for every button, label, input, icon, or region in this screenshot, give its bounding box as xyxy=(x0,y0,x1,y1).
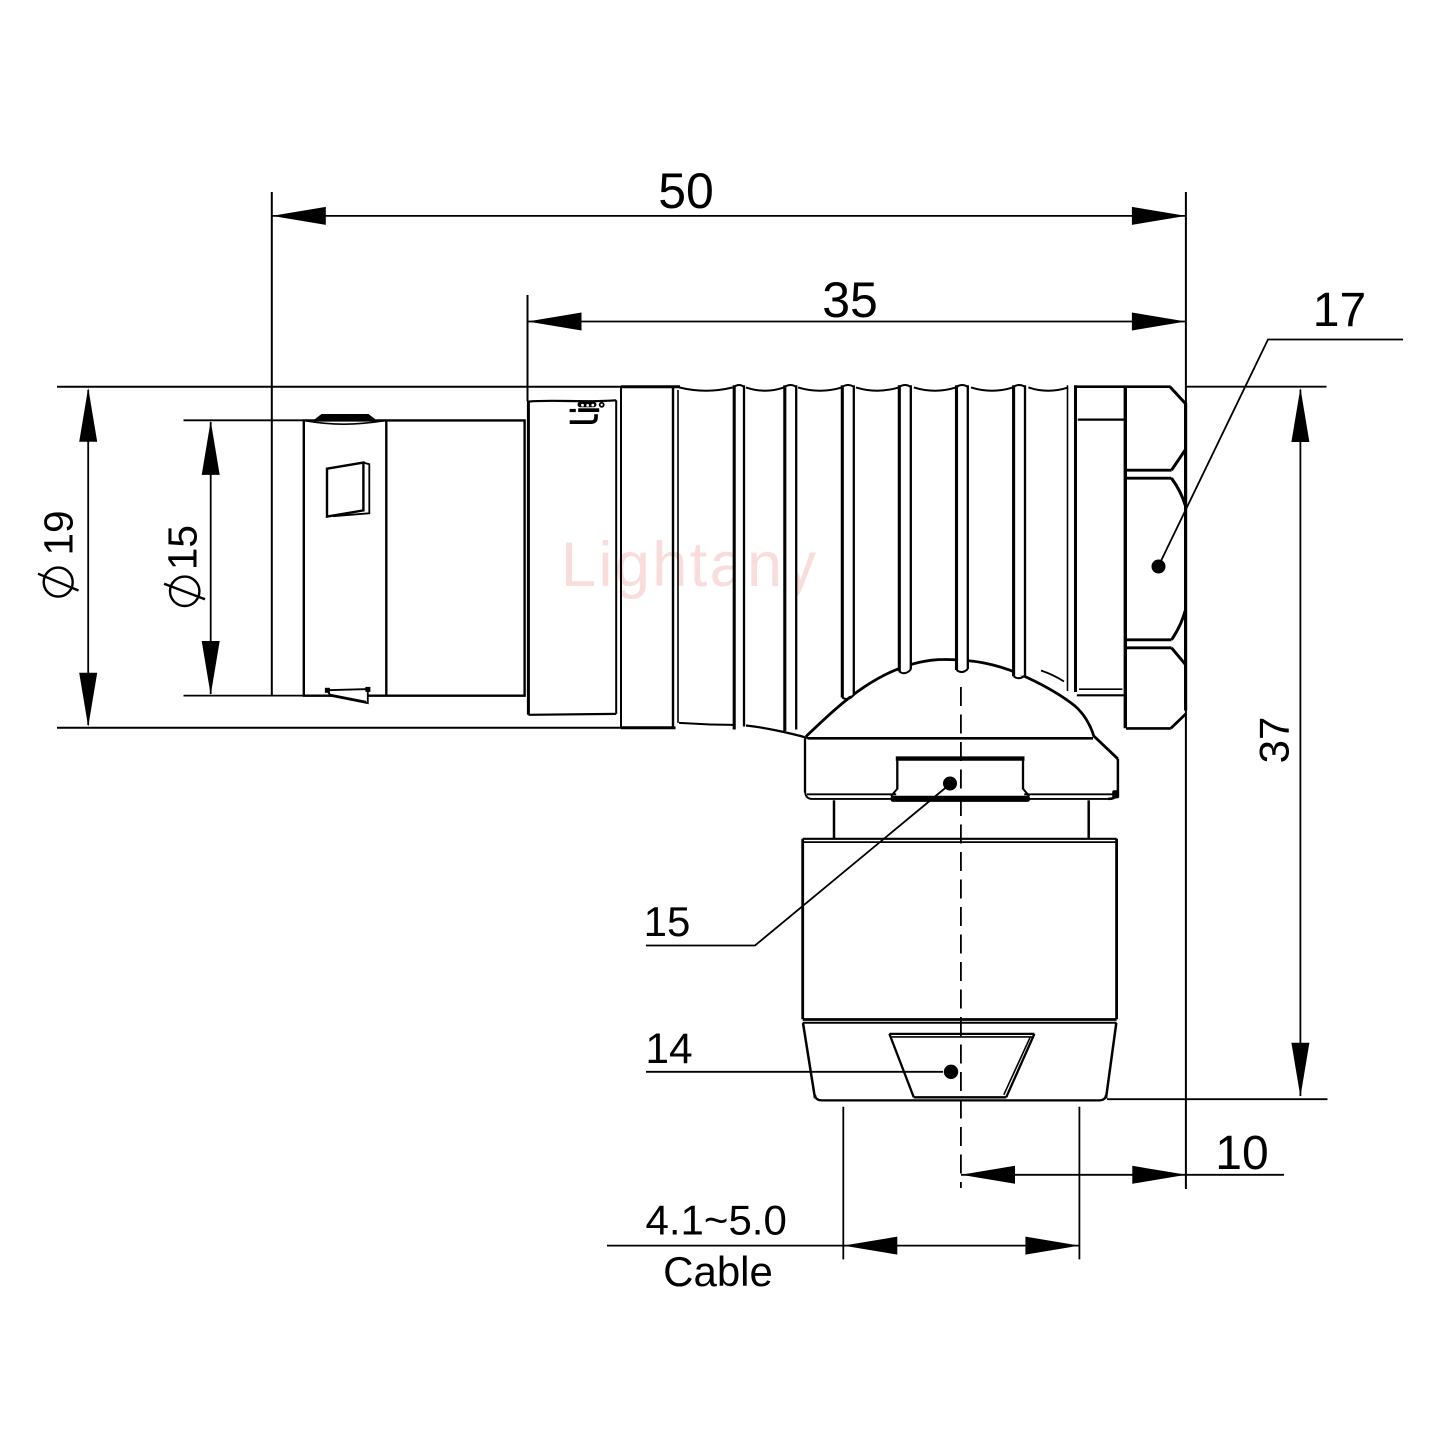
svg-text:35: 35 xyxy=(822,272,878,328)
svg-text:17: 17 xyxy=(1313,284,1366,337)
svg-text:19: 19 xyxy=(36,510,82,555)
svg-text:15: 15 xyxy=(160,525,206,570)
svg-text:50: 50 xyxy=(658,163,714,219)
svg-text:37: 37 xyxy=(1251,717,1298,764)
svg-text:Lightany: Lightany xyxy=(561,530,818,600)
svg-text:Cable: Cable xyxy=(663,1248,773,1295)
svg-text:15: 15 xyxy=(644,898,691,945)
svg-text:4.1~5.0: 4.1~5.0 xyxy=(646,1197,787,1244)
svg-text:14: 14 xyxy=(645,1026,692,1073)
svg-text:10: 10 xyxy=(1215,1127,1268,1180)
